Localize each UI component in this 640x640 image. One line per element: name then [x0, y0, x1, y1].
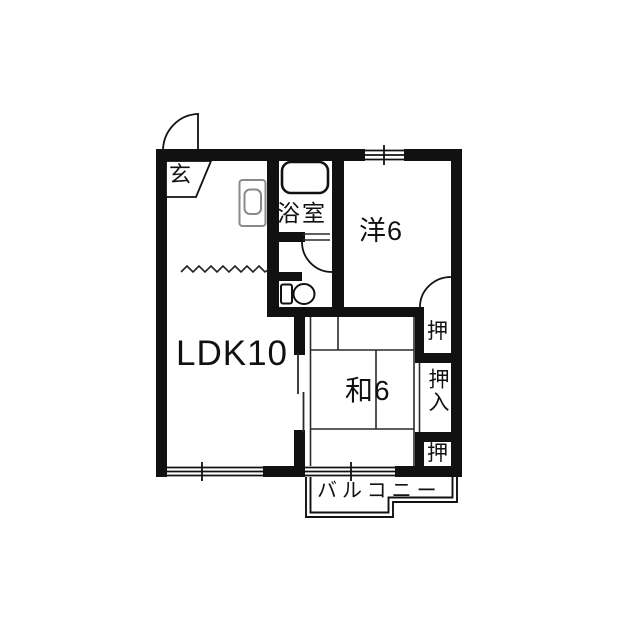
sliding-door-ldk-washitsu-icon — [298, 353, 304, 432]
closet-top-label: 押 — [427, 321, 448, 343]
walls — [156, 149, 462, 477]
genkan-label: 玄 — [169, 163, 191, 186]
balcony-label: バルコニー — [317, 481, 442, 502]
balcony-sliding-door-icon — [305, 462, 395, 481]
bathroom-label: 浴室 — [277, 201, 327, 225]
closet-middle-label: 押入 — [426, 368, 448, 414]
washroom-door-arc-icon — [302, 242, 332, 272]
bathtub-icon — [282, 162, 328, 193]
window-top-icon — [365, 145, 404, 165]
western-room-door-arc-icon — [420, 277, 451, 307]
toilet-icon — [281, 284, 315, 304]
bathroom-sliding-door-icon — [303, 234, 330, 240]
japanese-room-label: 和6 — [345, 376, 391, 405]
entrance-door-arc-icon — [163, 114, 199, 151]
floor-plan-drawing — [0, 0, 640, 640]
closet-bottom-label: 押 — [427, 443, 448, 465]
kitchen-sink-icon — [240, 180, 266, 226]
western-room-label: 洋6 — [359, 217, 403, 245]
floor-plan: 玄 浴室 洋6 LDK10 和6 押 押入 押 バルコニー — [0, 0, 640, 640]
zigzag-divider — [181, 266, 269, 272]
ldk-label: LDK10 — [176, 336, 288, 373]
window-bottom-icon — [167, 462, 263, 481]
